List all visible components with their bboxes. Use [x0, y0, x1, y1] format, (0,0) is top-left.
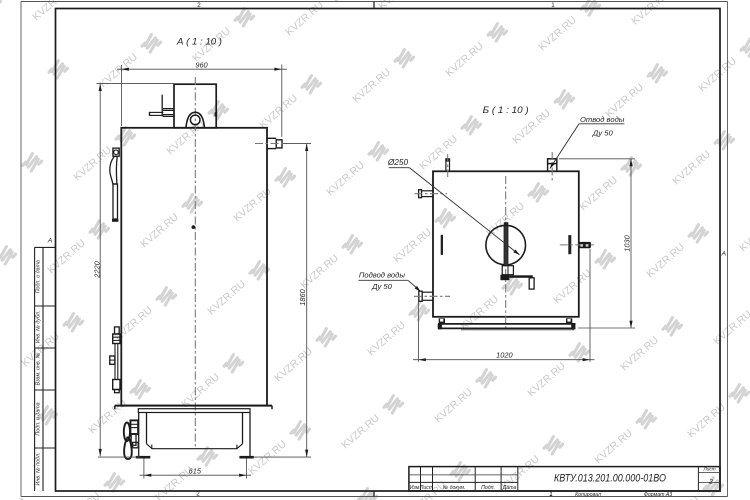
svg-text:1860: 1860 — [298, 288, 307, 305]
svg-text:960: 960 — [195, 61, 208, 70]
svg-text:Изм: Изм — [410, 485, 420, 491]
svg-text:Формат А3: Формат А3 — [644, 492, 672, 498]
svg-text:Ду 50: Ду 50 — [371, 282, 393, 291]
svg-text:Б ( 1 : 10 ): Б ( 1 : 10 ) — [483, 105, 529, 116]
svg-text:Подп. и дата: Подп. и дата — [36, 402, 42, 435]
svg-text:615: 615 — [189, 466, 202, 475]
svg-text:Подп.: Подп. — [481, 485, 495, 491]
svg-text:2220: 2220 — [93, 260, 102, 278]
svg-text:Подп. и дата: Подп. и дата — [36, 260, 42, 293]
svg-text:А: А — [721, 250, 727, 257]
svg-text:Отвод воды: Отвод воды — [580, 115, 625, 124]
svg-text:КВТУ.013.201.00.000-01ВО: КВТУ.013.201.00.000-01ВО — [554, 472, 666, 484]
svg-text:1020: 1020 — [496, 351, 513, 360]
svg-text:А: А — [47, 238, 53, 245]
svg-text:Лист: Лист — [702, 466, 715, 472]
svg-text:1030: 1030 — [623, 234, 632, 251]
svg-text:Инв. № дубл.: Инв. № дубл. — [36, 311, 42, 344]
svg-text:1: 1 — [550, 492, 553, 498]
svg-text:Взам. инв. №: Взам. инв. № — [36, 352, 42, 385]
svg-text:2: 2 — [708, 479, 713, 486]
svg-text:№ докум.: № докум. — [443, 485, 466, 491]
svg-text:Ду 50: Ду 50 — [592, 128, 614, 137]
svg-text:Инв. № подл.: Инв. № подл. — [36, 453, 42, 486]
svg-text:Дата: Дата — [502, 485, 517, 491]
svg-text:Ø250: Ø250 — [387, 157, 409, 167]
svg-text:Копировал: Копировал — [575, 492, 601, 498]
svg-text:А ( 1 : 10 ): А ( 1 : 10 ) — [176, 36, 222, 47]
svg-text:Лист: Лист — [419, 485, 434, 491]
svg-text:Подвод воды: Подвод воды — [359, 270, 405, 279]
